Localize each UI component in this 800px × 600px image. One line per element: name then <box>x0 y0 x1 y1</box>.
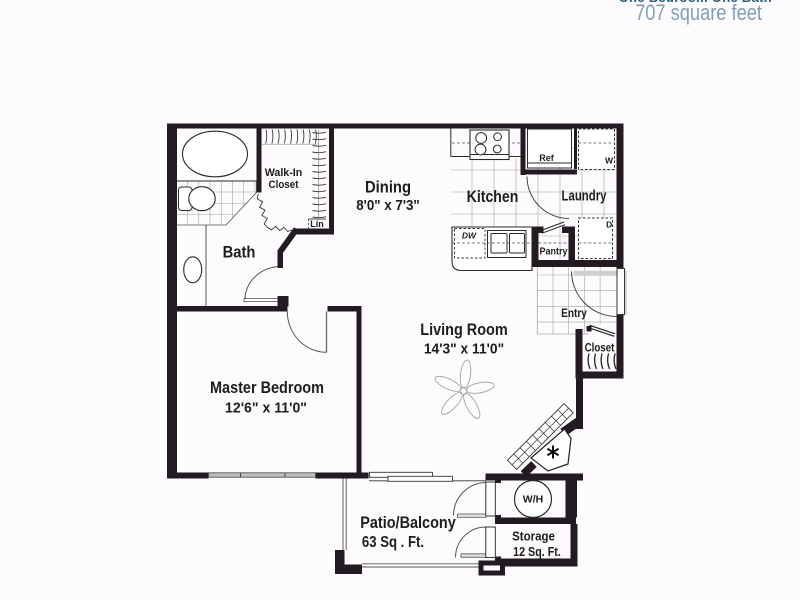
svg-text:Living Room: Living Room <box>420 321 507 339</box>
svg-text:D: D <box>606 220 612 230</box>
svg-text:Dining: Dining <box>365 179 411 197</box>
svg-text:Pantry: Pantry <box>539 246 568 258</box>
svg-text:Bath: Bath <box>223 243 256 261</box>
svg-text:12'6" x 11'0": 12'6" x 11'0" <box>225 400 307 416</box>
svg-text:Storage: Storage <box>512 529 555 544</box>
svg-text:Master Bedroom: Master Bedroom <box>210 379 324 397</box>
svg-text:Kitchen: Kitchen <box>467 188 519 206</box>
svg-text:Walk-In: Walk-In <box>265 167 303 179</box>
svg-text:Entry: Entry <box>561 307 587 320</box>
svg-text:W: W <box>605 156 614 166</box>
svg-text:W/H: W/H <box>523 494 543 506</box>
svg-text:Patio/Balcony: Patio/Balcony <box>360 514 456 532</box>
svg-text:DW: DW <box>462 230 477 240</box>
svg-text:Closet: Closet <box>269 180 299 192</box>
svg-text:12 Sq. Ft.: 12 Sq. Ft. <box>513 545 561 559</box>
svg-text:Closet: Closet <box>585 342 615 355</box>
svg-text:Ref: Ref <box>539 153 555 163</box>
svg-text:Lin: Lin <box>310 219 324 229</box>
svg-text:63 Sq . Ft.: 63 Sq . Ft. <box>362 534 424 551</box>
svg-text:Laundry: Laundry <box>562 187 607 204</box>
svg-text:14'3" x 11'0": 14'3" x 11'0" <box>424 341 504 358</box>
svg-text:8'0" x 7'3": 8'0" x 7'3" <box>356 197 420 214</box>
